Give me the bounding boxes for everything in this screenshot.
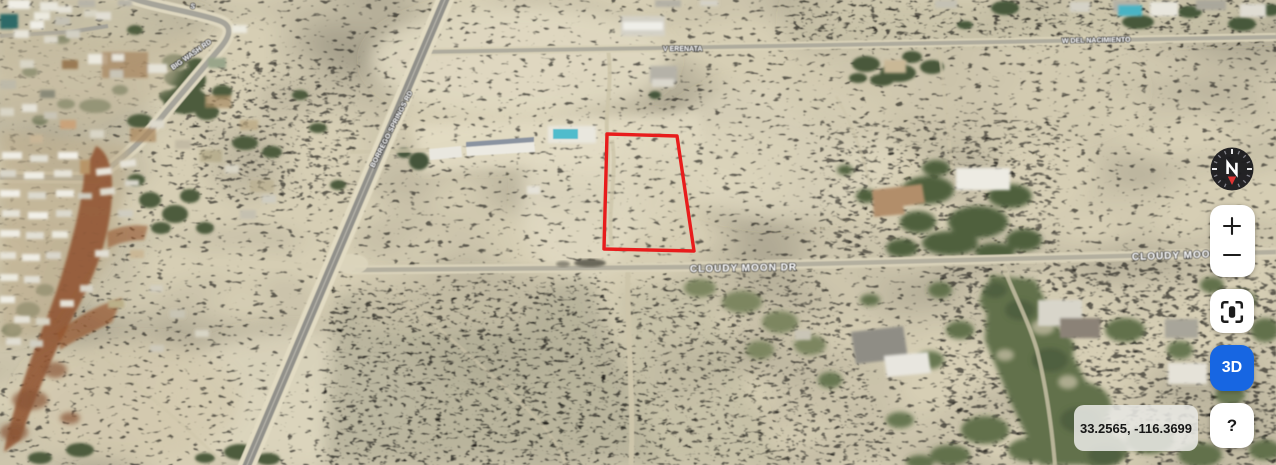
svg-text:W DEL NACIMIENTO: W DEL NACIMIENTO: [1062, 37, 1131, 45]
svg-text:CLOUDY MOON DR: CLOUDY MOON DR: [690, 262, 797, 275]
svg-text:V ERENATA: V ERENATA: [663, 46, 702, 53]
